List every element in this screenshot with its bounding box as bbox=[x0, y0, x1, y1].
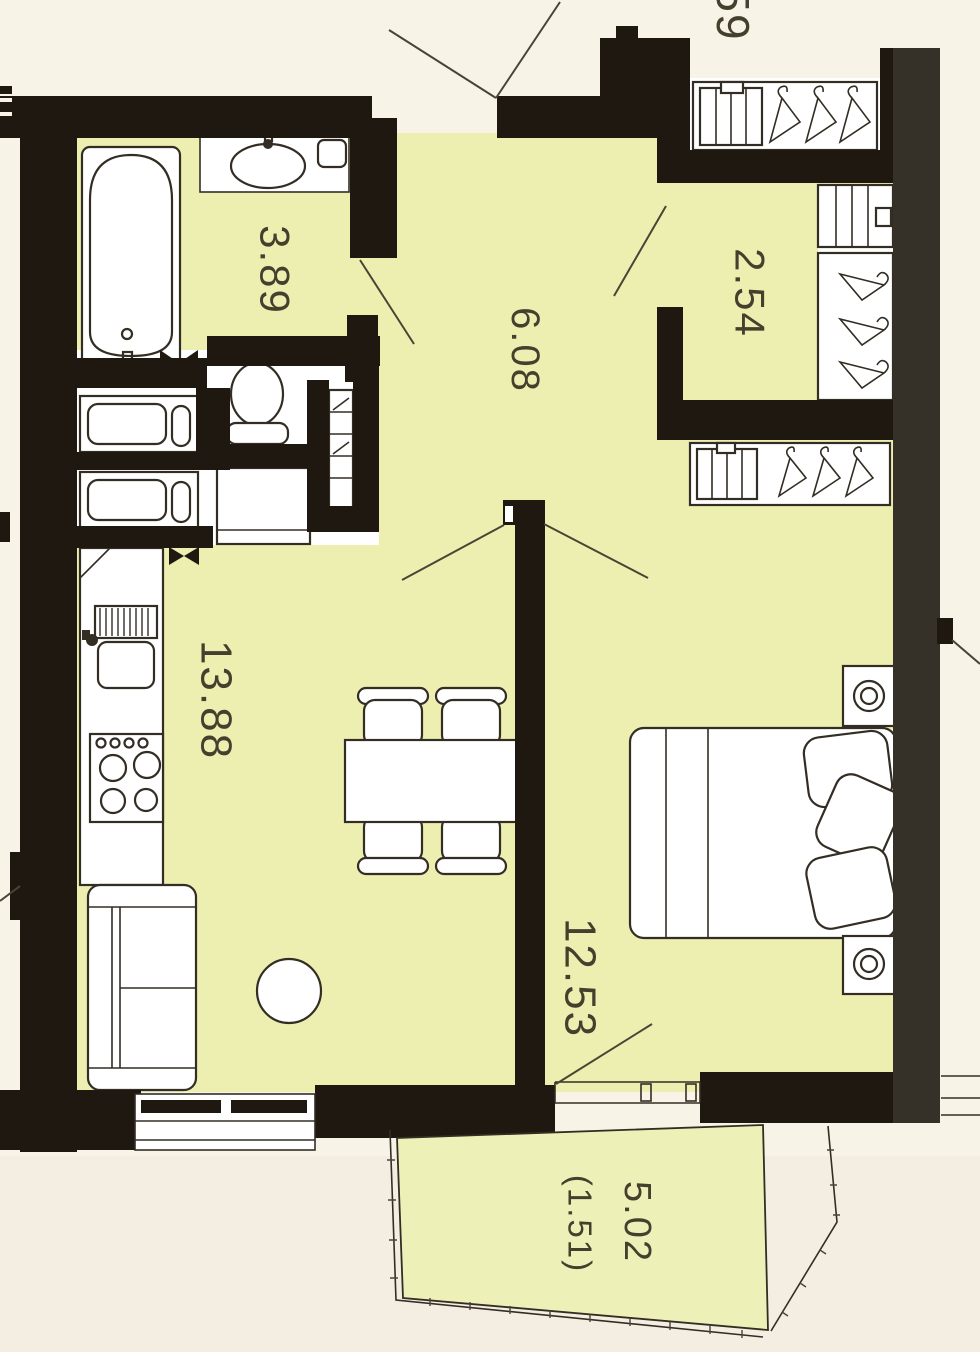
double-bed bbox=[630, 728, 907, 938]
wall-entry-pilaster bbox=[600, 38, 657, 96]
wall-notch bbox=[616, 26, 638, 40]
kitchen-faucet-handle bbox=[82, 630, 90, 640]
room-label-bathroom: 3.89 bbox=[252, 225, 299, 315]
toilet-cabinet bbox=[217, 468, 310, 544]
wall-washer-bottom bbox=[77, 526, 213, 548]
kitchen-counter-outline bbox=[80, 548, 163, 885]
sofa bbox=[88, 885, 196, 1090]
wall-right-bump bbox=[937, 618, 953, 644]
dining-table bbox=[345, 740, 520, 822]
toilet-tank bbox=[227, 423, 288, 444]
wall-partition bbox=[515, 525, 545, 1085]
wall-left-pier bbox=[10, 852, 50, 920]
washbasin bbox=[231, 144, 305, 188]
wall-washer-separator bbox=[77, 452, 210, 470]
room-label-bedroom: 12.53 bbox=[556, 918, 605, 1038]
bedroom-wardrobe bbox=[690, 443, 890, 505]
living-room-window bbox=[135, 1094, 315, 1150]
nightstand-lamp-bottom bbox=[843, 936, 895, 994]
washer-2 bbox=[80, 472, 198, 528]
nightstand-lamp-top bbox=[843, 666, 895, 726]
wall-niche-floor bbox=[657, 150, 893, 183]
wall-bottom-living bbox=[315, 1085, 555, 1138]
adjacent-wardrobe bbox=[693, 82, 877, 150]
room-label-balcony-note: (1.51) bbox=[562, 1175, 599, 1273]
wall-under-toilet bbox=[196, 444, 312, 468]
stove bbox=[90, 734, 163, 822]
wall-bottom-left bbox=[0, 1090, 141, 1150]
wall-bathroom-east-upper bbox=[350, 118, 397, 258]
toilet-bowl bbox=[231, 363, 283, 425]
floor-plan-page: 3.89 6.08 2.54 13.88 12.53 5.02 (1.51) 5… bbox=[0, 0, 980, 1352]
wall-left bbox=[20, 96, 77, 1152]
wall-right-outer bbox=[893, 48, 940, 1123]
washbasin-tap bbox=[263, 139, 273, 149]
wall-sanitary-east-cap bbox=[345, 356, 379, 382]
room-label-closet: 2.54 bbox=[727, 248, 774, 338]
floor-plan-drawing: 3.89 6.08 2.54 13.88 12.53 5.02 (1.51) 5… bbox=[0, 0, 980, 1352]
room-label-balcony: 5.02 bbox=[616, 1181, 658, 1263]
wall-fragment-top-left bbox=[0, 86, 12, 94]
adjacent-unit-label: 59 bbox=[707, 0, 759, 42]
pillow bbox=[803, 844, 898, 931]
partition-door-notch bbox=[505, 506, 513, 522]
wall-fragment-left bbox=[0, 512, 10, 542]
wall-top-right bbox=[497, 96, 657, 138]
room-label-hallway: 6.08 bbox=[503, 307, 547, 393]
shelf-unit bbox=[329, 390, 353, 508]
wall-closet-south bbox=[657, 400, 893, 440]
wall-sanitary-east-foot bbox=[315, 506, 379, 532]
wall-bathroom-south bbox=[20, 358, 207, 388]
closet-wardrobe bbox=[818, 185, 893, 400]
wall-sanitary-east bbox=[353, 356, 379, 532]
washer bbox=[80, 396, 198, 452]
round-table bbox=[257, 959, 321, 1023]
room-label-kitchen-living: 13.88 bbox=[192, 640, 241, 760]
